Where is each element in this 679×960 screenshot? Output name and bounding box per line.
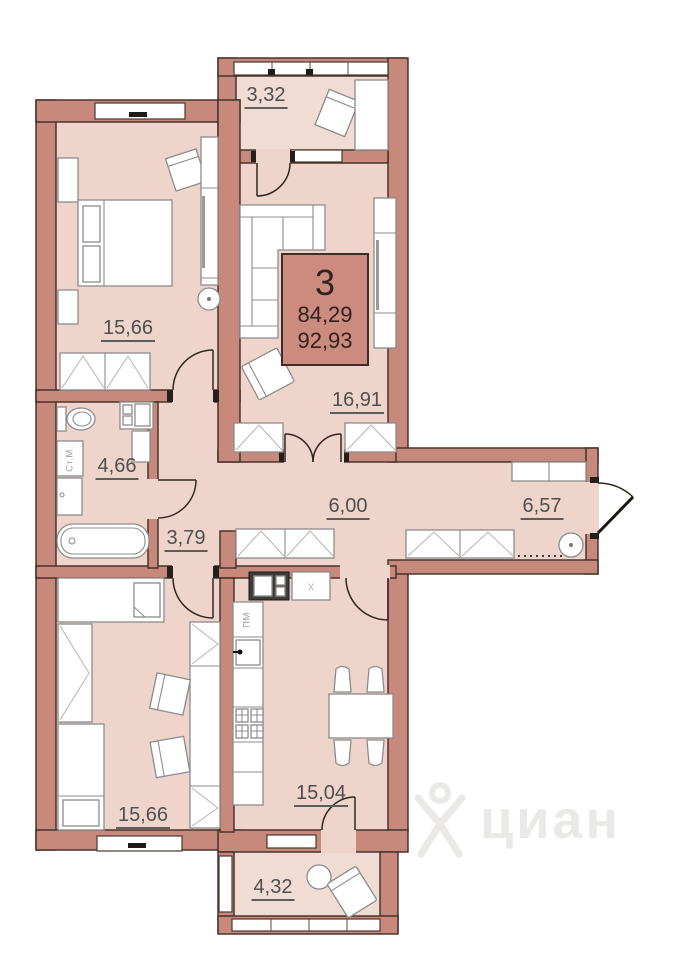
door-jamb [251,151,256,162]
hall-mirror-dot [569,543,573,547]
opening-kids-door [172,565,214,579]
wall-kids-kitchen [220,578,234,832]
total-area-value: 92,93 [297,328,352,355]
oven-door [254,576,272,596]
window-balcony-bottom-glazing [232,919,380,931]
apartment-badge: 3 84,29 92,93 [281,253,369,366]
opening-balcony-top-door [256,149,290,164]
nightstand [58,290,78,324]
door-arc-entrance [598,483,633,497]
window-bedroom-tick [129,112,147,117]
window-kitchen-balcony [267,835,316,848]
dishwasher-label: ПМ [242,612,253,628]
watermark-person-icon [412,782,468,858]
opening-balcony-bottom-door [321,829,356,853]
floor-lamp-dot [207,297,211,301]
opening-bathroom-door [147,479,159,519]
pillow [134,583,160,617]
chair [150,736,190,777]
wall-entrance-hall-top [388,448,598,462]
pillow [63,800,99,826]
boiler-cell [123,405,132,414]
wall-hall-corridor-stub [220,531,236,568]
living-area-value: 84,29 [297,302,352,329]
flat-number: 3 [315,264,335,302]
room-label-kids-room: 15,66 [116,805,170,829]
person-head [432,785,448,801]
chair [150,673,191,715]
door-jamb [590,477,599,483]
opening-kitchen-entry [340,565,390,579]
dining-chair [334,667,351,693]
glazing-tick [306,69,313,75]
door-jamb [290,151,295,162]
oven-panel [276,587,285,596]
door-jamb [167,566,173,578]
door-jamb [213,390,219,402]
pillow [83,206,100,242]
window-living-balcony [291,150,342,162]
tv [376,240,379,310]
bathtub [57,524,149,558]
room-label-kitchen: 15,04 [294,783,348,807]
room-label-living-room: 16,91 [330,390,384,414]
opening-entrance-door [585,482,599,534]
toilet-tank [57,407,66,431]
kids-wardrobe [58,624,92,722]
dining-table [329,694,393,738]
dining-chair [334,740,351,766]
room-label-balcony-bottom: 4,32 [252,877,295,901]
floor-plan-page: 3,32 15,66 16,91 4,66 3,79 6,00 6,57 15,… [0,0,679,960]
desk-wall-unit [190,622,220,828]
boiler-door [135,404,150,426]
room-label-balcony-top: 3,32 [245,85,288,109]
washing-machine-label: Ст.М. [65,446,76,472]
living-wardrobe-left [234,423,283,452]
room-label-bedroom: 15,66 [101,318,155,342]
chair-seat [150,736,190,777]
window-kids-tick [128,843,146,848]
door-jamb [167,390,173,402]
tv [202,196,205,268]
dining-chair [367,667,384,693]
kitchen-counter [233,602,263,805]
watermark: циан [412,782,621,858]
dining-chair [367,740,384,766]
door-leaf-entrance [598,497,633,533]
watermark-text: циан [480,793,621,847]
wall-bedroom-living [218,100,240,462]
window-balcony-bottom-side [219,856,232,912]
oven-panel [276,576,285,585]
chair-seat [150,673,191,715]
balcony-cabinet [355,80,388,150]
door-jamb [213,566,219,578]
glazing-tick [268,69,275,75]
boiler-cell [123,416,132,425]
wall-exterior-left [36,100,56,850]
opening-bedroom-door [172,389,214,403]
door-jamb [590,533,599,539]
fridge-label: x [308,579,315,594]
room-label-entrance-hall: 6,57 [521,496,564,520]
dresser [58,158,78,202]
pillow [83,246,100,282]
person-legs [421,824,459,854]
room-label-hall: 3,79 [165,528,208,552]
living-wardrobe-right [345,423,396,452]
room-label-corridor: 6,00 [327,496,370,520]
wall-entrance-hall-bottom [388,560,598,574]
room-label-bathroom: 4,66 [96,456,139,480]
